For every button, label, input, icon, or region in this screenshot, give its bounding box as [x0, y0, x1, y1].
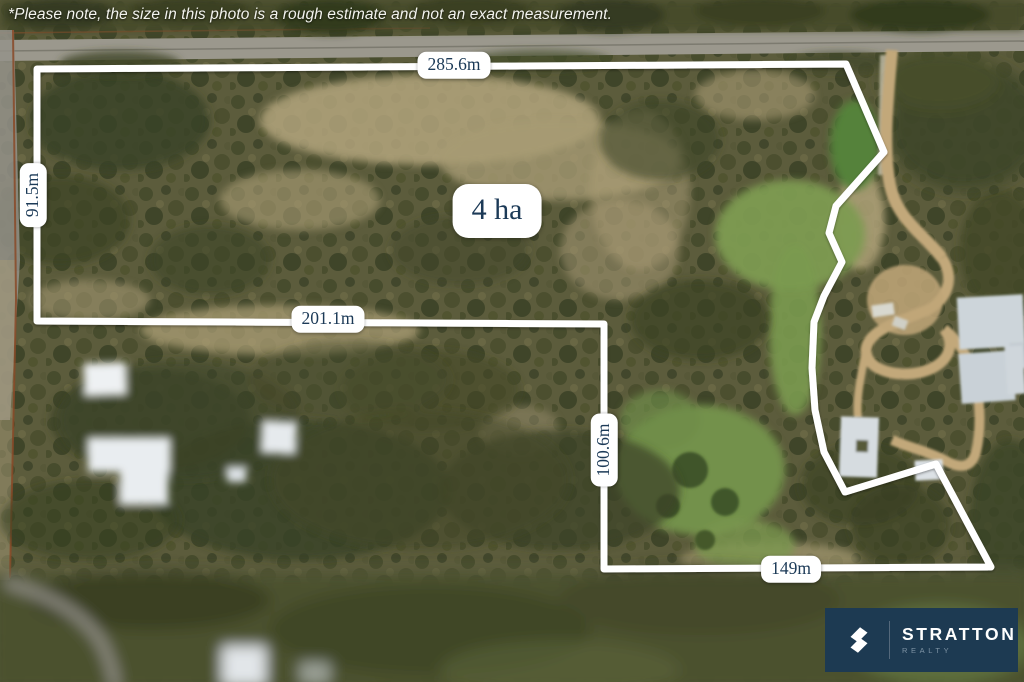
- logo-divider: [889, 621, 890, 659]
- stratton-realty-logo: STRATTON REALTY: [825, 608, 1018, 672]
- aerial-photo-background: [0, 0, 1024, 682]
- logo-brand-text: STRATTON: [902, 626, 1016, 644]
- measurement-label-middle: 201.1m: [292, 306, 365, 333]
- disclaimer-text: *Please note, the size in this photo is …: [8, 6, 612, 24]
- measurement-label-top: 285.6m: [418, 52, 491, 79]
- property-aerial-photo: *Please note, the size in this photo is …: [0, 0, 1024, 682]
- stratton-s-icon: [842, 620, 876, 660]
- measurement-label-inner-right: 100.6m: [591, 414, 618, 487]
- logo-division-text: REALTY: [902, 647, 1016, 655]
- measurement-label-bottom: 149m: [761, 556, 821, 583]
- area-label: 4 ha: [453, 184, 542, 238]
- measurement-label-left: 91.5m: [20, 163, 47, 227]
